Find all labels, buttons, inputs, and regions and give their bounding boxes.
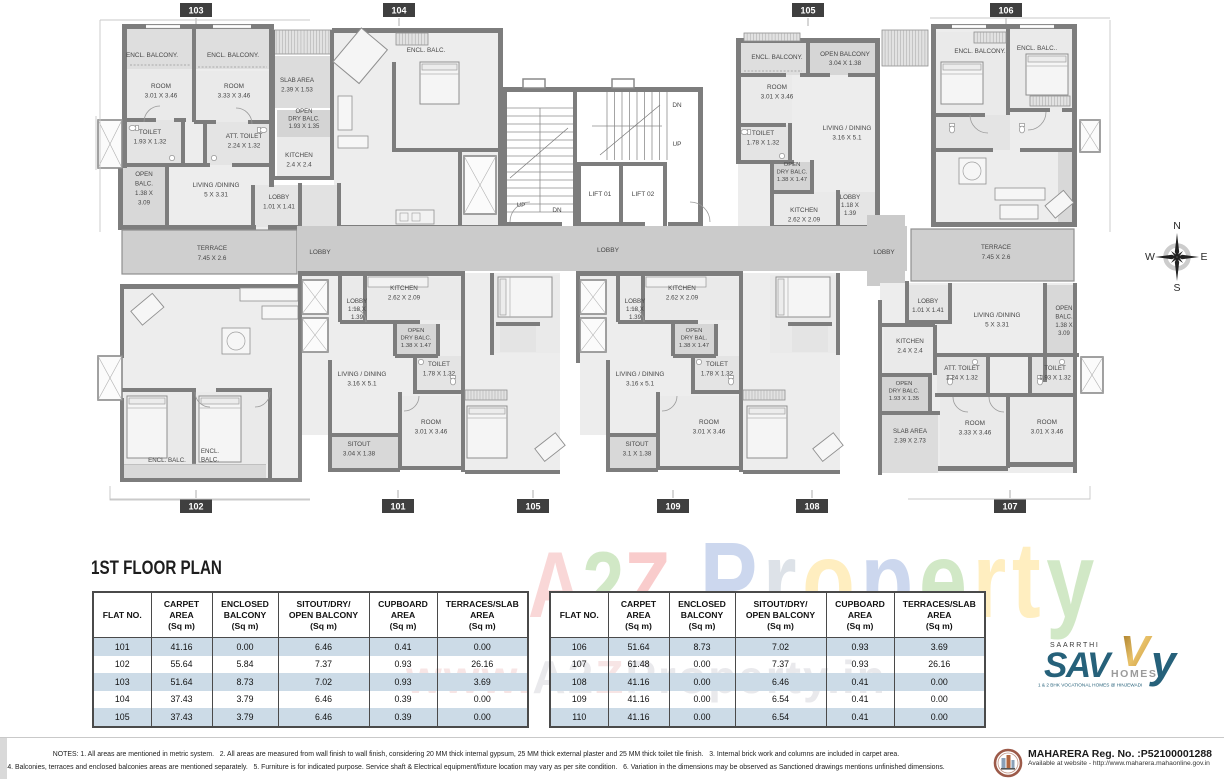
svg-text:OPEN: OPEN [686, 328, 703, 334]
svg-text:LOBBY: LOBBY [625, 298, 646, 305]
svg-text:2.24 X 1.32: 2.24 X 1.32 [946, 375, 978, 382]
svg-text:2.39 X 2.73: 2.39 X 2.73 [894, 438, 926, 445]
svg-text:OPEN: OPEN [408, 328, 425, 334]
svg-text:1.38 X 1.47: 1.38 X 1.47 [777, 177, 807, 183]
svg-text:1.18 X: 1.18 X [348, 306, 366, 313]
svg-text:DRY BALC.: DRY BALC. [288, 117, 320, 123]
svg-text:3.33 X 3.46: 3.33 X 3.46 [218, 93, 251, 100]
svg-text:TERRACE: TERRACE [197, 245, 227, 252]
svg-text:2.62 X 2.09: 2.62 X 2.09 [666, 295, 699, 302]
svg-text:DRY BALC.: DRY BALC. [889, 389, 920, 395]
svg-text:ENCL. BALC..: ENCL. BALC.. [1017, 45, 1057, 52]
svg-text:LIVING / DINING: LIVING / DINING [338, 371, 387, 378]
svg-text:SITOUT: SITOUT [348, 441, 371, 448]
svg-text:ROOM: ROOM [699, 419, 719, 426]
svg-text:SAV: SAV [1044, 646, 1113, 685]
svg-text:LIVING / DINING: LIVING / DINING [616, 371, 665, 378]
svg-text:ENCL. BALCONY.: ENCL. BALCONY. [207, 52, 259, 59]
svg-text:OPEN: OPEN [896, 381, 913, 387]
svg-text:1.93 X 1.32: 1.93 X 1.32 [134, 139, 167, 146]
svg-text:2.4 X 2.4: 2.4 X 2.4 [286, 162, 312, 169]
svg-text:LIVING / DINING: LIVING / DINING [823, 125, 872, 132]
svg-text:N: N [1173, 220, 1181, 232]
svg-text:KITCHEN: KITCHEN [896, 338, 924, 345]
svg-text:3.01 X 3.46: 3.01 X 3.46 [415, 429, 448, 436]
svg-text:103: 103 [188, 6, 203, 16]
svg-text:LOBBY: LOBBY [309, 249, 331, 256]
svg-text:3.16 X 5.1: 3.16 X 5.1 [832, 135, 862, 142]
svg-text:ROOM: ROOM [224, 83, 244, 90]
svg-text:KITCHEN: KITCHEN [668, 285, 696, 292]
svg-text:3.04 X 1.38: 3.04 X 1.38 [829, 60, 862, 67]
svg-text:TOILET: TOILET [752, 130, 774, 137]
svg-text:ROOM: ROOM [1037, 419, 1057, 426]
svg-text:1 & 2 BHK VOCATIONAL HOMES @ H: 1 & 2 BHK VOCATIONAL HOMES @ HINJEWADI [1038, 683, 1142, 688]
svg-text:KITCHEN: KITCHEN [790, 207, 818, 214]
svg-text:2.62 X 2.09: 2.62 X 2.09 [788, 217, 821, 224]
svg-text:OPEN: OPEN [1055, 306, 1072, 312]
svg-text:LIVING /DINING: LIVING /DINING [193, 182, 240, 189]
svg-text:W: W [1145, 251, 1155, 263]
svg-text:106: 106 [998, 6, 1013, 16]
svg-text:108: 108 [804, 502, 819, 512]
svg-text:TOILET: TOILET [428, 361, 450, 368]
svg-text:3.09: 3.09 [1058, 331, 1070, 337]
svg-text:3.16 x 5.1: 3.16 x 5.1 [626, 381, 655, 388]
svg-text:3.01 X 3.46: 3.01 X 3.46 [761, 94, 794, 101]
svg-text:3.33 X 3.46: 3.33 X 3.46 [959, 430, 992, 437]
svg-text:5 X 3.31: 5 X 3.31 [985, 322, 1009, 329]
svg-text:E: E [1200, 251, 1207, 263]
svg-text:LOBBY: LOBBY [347, 298, 368, 305]
svg-text:KITCHEN: KITCHEN [285, 152, 313, 159]
svg-text:DN: DN [672, 102, 682, 109]
svg-text:1.39: 1.39 [844, 210, 857, 217]
svg-text:3.09: 3.09 [138, 200, 151, 207]
svg-text:SITOUT: SITOUT [626, 441, 649, 448]
svg-text:UP: UP [673, 141, 682, 148]
svg-text:7.45 X 2.6: 7.45 X 2.6 [198, 255, 227, 262]
svg-text:1.38 X: 1.38 X [135, 190, 153, 197]
svg-text:1.93 X 1.35: 1.93 X 1.35 [889, 396, 920, 402]
svg-text:BALC.: BALC. [201, 457, 219, 464]
svg-text:S: S [1173, 282, 1180, 294]
svg-text:TOILET: TOILET [139, 129, 161, 136]
svg-text:ROOM: ROOM [421, 419, 441, 426]
svg-text:LIFT 01: LIFT 01 [589, 191, 612, 198]
svg-text:ATT. TOILET: ATT. TOILET [226, 133, 263, 140]
svg-text:1.38 X: 1.38 X [1055, 323, 1072, 329]
svg-text:LOBBY: LOBBY [597, 247, 620, 254]
svg-text:OPEN BALCONY: OPEN BALCONY [820, 51, 870, 58]
svg-text:1.38 X 1.47: 1.38 X 1.47 [679, 343, 709, 349]
svg-text:ENCL.: ENCL. [201, 448, 220, 455]
svg-text:2.39 X 1.53: 2.39 X 1.53 [281, 87, 313, 94]
svg-text:OPEN: OPEN [295, 109, 312, 115]
svg-text:LOBBY: LOBBY [840, 194, 861, 201]
svg-text:1.01 X 1.41: 1.01 X 1.41 [912, 307, 944, 314]
svg-text:ATT. TOILET: ATT. TOILET [944, 365, 980, 372]
svg-text:TERRACE: TERRACE [981, 244, 1011, 251]
svg-text:7.45 X 2.6: 7.45 X 2.6 [982, 254, 1011, 261]
svg-text:ROOM: ROOM [965, 420, 985, 427]
svg-text:105: 105 [525, 502, 540, 512]
svg-text:101: 101 [390, 502, 405, 512]
svg-text:1.78 X 1.32: 1.78 X 1.32 [747, 140, 780, 147]
svg-text:3.01 X 3.46: 3.01 X 3.46 [693, 429, 726, 436]
svg-text:102: 102 [188, 502, 203, 512]
svg-text:3.04 X 1.38: 3.04 X 1.38 [343, 451, 376, 458]
svg-text:105: 105 [800, 6, 815, 16]
svg-text:ROOM: ROOM [767, 84, 787, 91]
svg-text:107: 107 [1002, 502, 1017, 512]
svg-text:SLAB AREA: SLAB AREA [893, 428, 928, 435]
svg-text:ENCL. BALCONY.: ENCL. BALCONY. [751, 54, 803, 61]
svg-text:3.01 X 3.46: 3.01 X 3.46 [145, 93, 178, 100]
svg-text:LIFT 02: LIFT 02 [632, 191, 655, 198]
svg-text:DRY BAL.: DRY BAL. [681, 335, 708, 341]
svg-text:1.39: 1.39 [351, 314, 364, 321]
svg-text:ENCL. BALCONY.: ENCL. BALCONY. [954, 48, 1006, 55]
svg-text:1.18 X: 1.18 X [626, 306, 644, 313]
svg-text:1.39: 1.39 [629, 314, 642, 321]
svg-text:TOILET: TOILET [1044, 365, 1066, 372]
svg-text:HOMES: HOMES [1111, 668, 1158, 680]
svg-text:KITCHEN: KITCHEN [390, 285, 418, 292]
svg-text:SLAB AREA: SLAB AREA [280, 77, 315, 84]
svg-text:2.24 X 1.32: 2.24 X 1.32 [228, 143, 261, 150]
svg-text:3.01 X 3.46: 3.01 X 3.46 [1031, 429, 1064, 436]
svg-text:1.38 X 1.47: 1.38 X 1.47 [401, 343, 431, 349]
svg-text:3.1 X 1.38: 3.1 X 1.38 [623, 451, 652, 458]
svg-text:2.4 X 2.4: 2.4 X 2.4 [897, 348, 923, 355]
svg-text:BALC.: BALC. [1055, 314, 1073, 320]
svg-text:ENCL. BALC.: ENCL. BALC. [148, 457, 186, 464]
svg-text:1.93 X 1.32: 1.93 X 1.32 [1039, 375, 1071, 382]
svg-text:1.01 X 1.41: 1.01 X 1.41 [263, 204, 295, 211]
svg-text:BALC.: BALC. [135, 181, 153, 188]
svg-text:1.18 X: 1.18 X [841, 202, 859, 209]
svg-text:ENCL. BALCONY.: ENCL. BALCONY. [126, 52, 178, 59]
svg-text:LOBBY: LOBBY [918, 298, 939, 305]
svg-text:ENCL. BALC.: ENCL. BALC. [407, 47, 446, 54]
svg-text:TOILET: TOILET [706, 361, 728, 368]
svg-text:LIVING /DINING: LIVING /DINING [974, 312, 1021, 319]
svg-text:DRY BALC.: DRY BALC. [401, 335, 432, 341]
svg-text:OPEN: OPEN [784, 162, 801, 168]
svg-text:3.16 X 5.1: 3.16 X 5.1 [347, 381, 377, 388]
svg-text:DRY BALC.: DRY BALC. [777, 170, 808, 176]
svg-text:LOBBY: LOBBY [269, 194, 290, 201]
svg-text:LOBBY: LOBBY [873, 249, 895, 256]
svg-text:1.93 X 1.35: 1.93 X 1.35 [289, 124, 320, 130]
svg-text:5 X 3.31: 5 X 3.31 [204, 192, 228, 199]
svg-text:DN: DN [552, 207, 562, 214]
svg-text:2.62 X 2.09: 2.62 X 2.09 [388, 295, 421, 302]
svg-text:104: 104 [391, 6, 406, 16]
svg-text:OPEN: OPEN [135, 171, 153, 178]
svg-text:109: 109 [665, 502, 680, 512]
svg-text:ROOM: ROOM [151, 83, 171, 90]
